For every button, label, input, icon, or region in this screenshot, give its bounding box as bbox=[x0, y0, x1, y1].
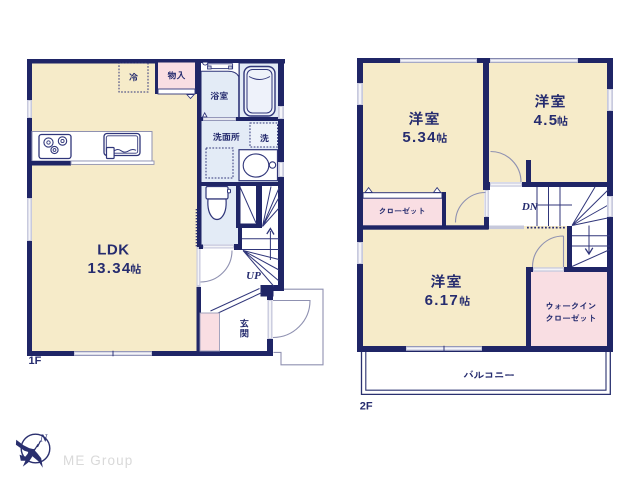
svg-text:DN: DN bbox=[521, 201, 539, 213]
svg-text:13.34: 13.34 bbox=[87, 260, 131, 277]
svg-text:N: N bbox=[39, 434, 48, 445]
svg-text:4.5: 4.5 bbox=[534, 112, 559, 129]
svg-text:5.34: 5.34 bbox=[402, 129, 436, 146]
svg-text:1F: 1F bbox=[29, 355, 42, 367]
svg-text:2F: 2F bbox=[360, 401, 373, 413]
svg-text:UP: UP bbox=[246, 270, 261, 282]
svg-text:ME Group: ME Group bbox=[63, 453, 133, 468]
svg-text:6.17: 6.17 bbox=[425, 292, 459, 309]
svg-text:LDK: LDK bbox=[97, 242, 129, 259]
